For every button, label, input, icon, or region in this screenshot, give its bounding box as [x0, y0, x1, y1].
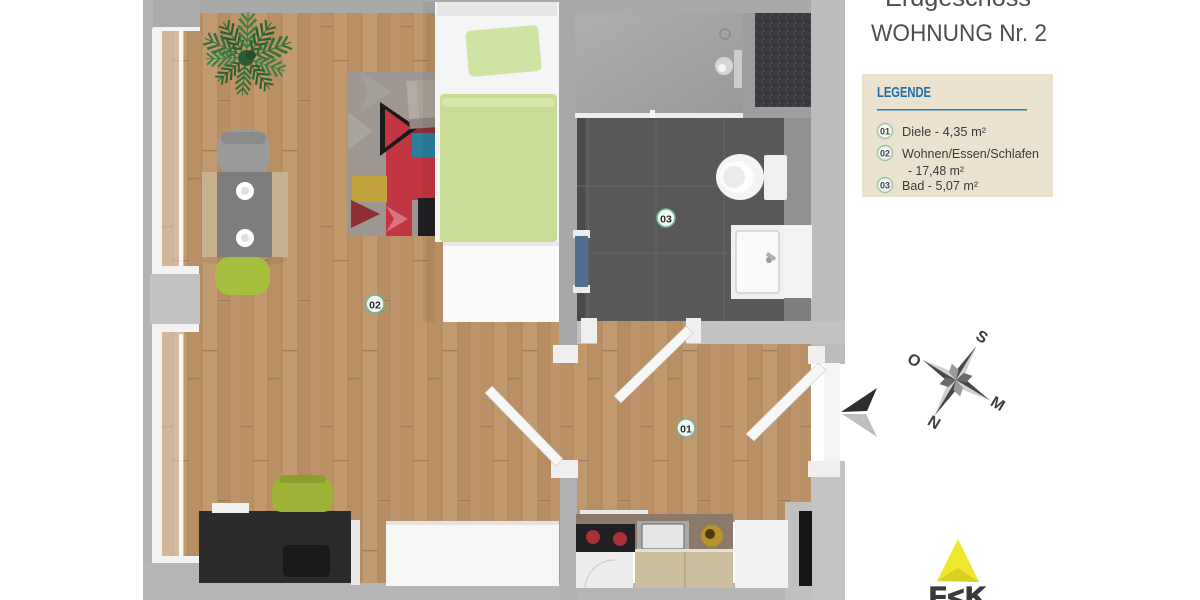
svg-text:02: 02: [880, 149, 890, 159]
svg-text:01: 01: [880, 127, 890, 137]
svg-text:Erdgeschoss: Erdgeschoss: [885, 0, 1031, 12]
svg-text:03: 03: [880, 181, 890, 191]
svg-text:- 17,48 m²: - 17,48 m²: [908, 163, 965, 178]
svg-text:03: 03: [660, 214, 672, 226]
svg-text:LEGENDE: LEGENDE: [877, 85, 931, 101]
svg-text:Bad - 5,07 m²: Bad - 5,07 m²: [902, 178, 979, 193]
svg-text:F<K: F<K: [929, 581, 987, 600]
svg-text:WOHNUNG Nr. 2: WOHNUNG Nr. 2: [871, 20, 1047, 47]
svg-text:02: 02: [369, 300, 381, 312]
svg-text:Diele - 4,35 m²: Diele - 4,35 m²: [902, 124, 987, 139]
svg-text:01: 01: [680, 424, 692, 436]
svg-text:Wohnen/Essen/Schlafen: Wohnen/Essen/Schlafen: [902, 146, 1039, 161]
